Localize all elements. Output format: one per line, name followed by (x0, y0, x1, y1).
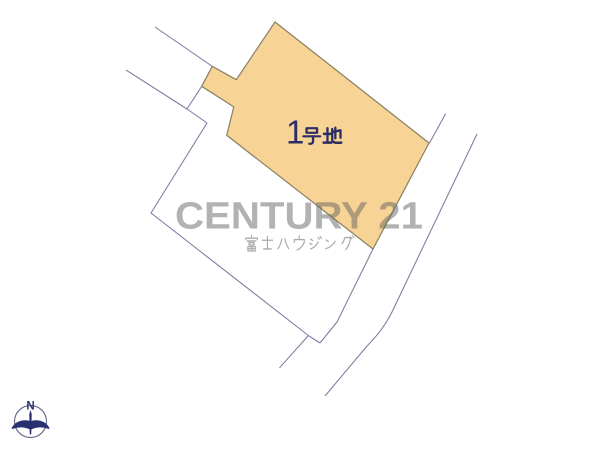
svg-text:1: 1 (286, 114, 304, 151)
svg-text:CENTURY 21: CENTURY 21 (175, 195, 423, 237)
